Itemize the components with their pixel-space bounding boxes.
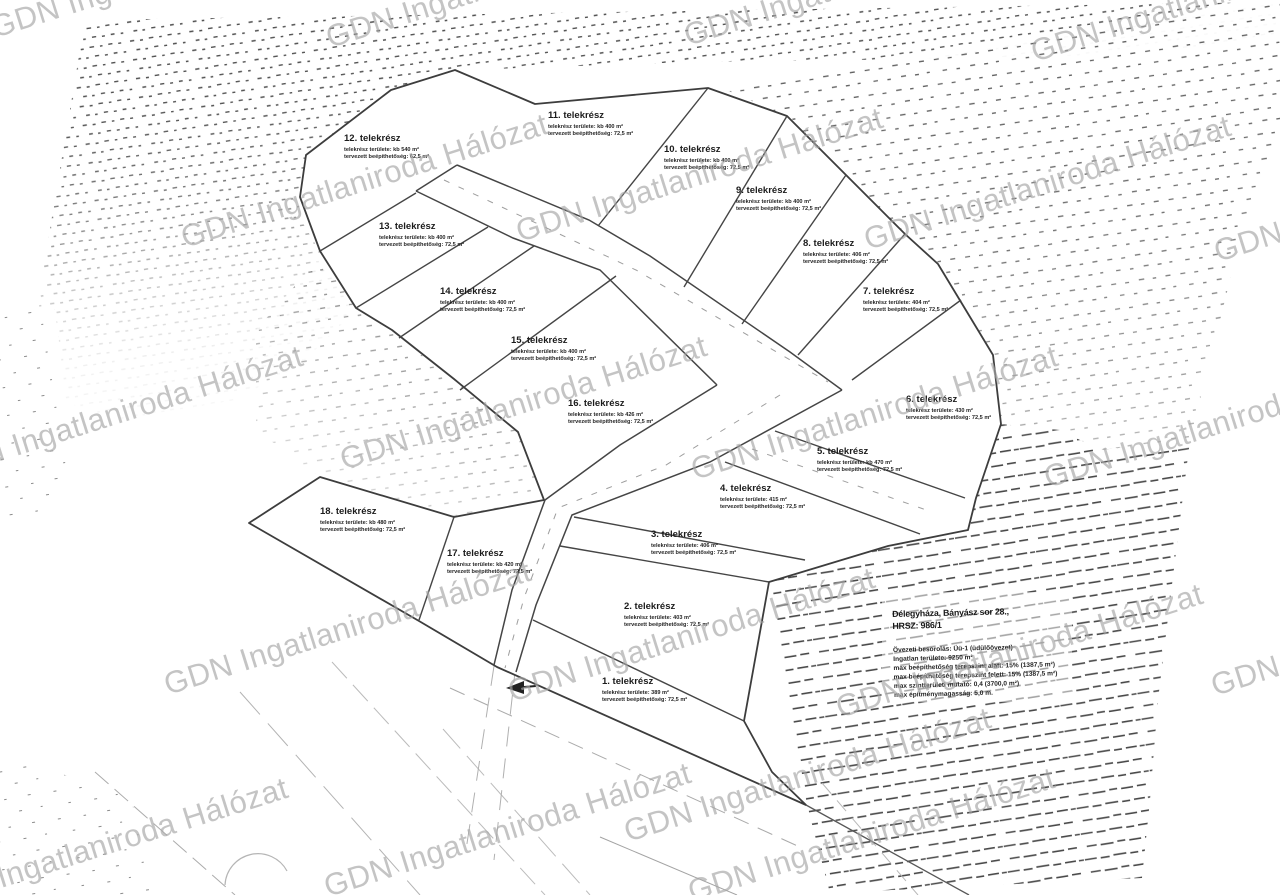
svg-text:telekrész területe: kb 426 m²: telekrész területe: kb 426 m² <box>568 411 643 418</box>
svg-text:tervezett beépíthetőség: 72,5: tervezett beépíthetőség: 72,5 m² <box>720 503 805 510</box>
svg-text:tervezett beépíthetőség: 72,5: tervezett beépíthetőség: 72,5 m² <box>736 205 821 212</box>
svg-text:tervezett beépíthetőség: 72,5: tervezett beépíthetőség: 72,5 m² <box>651 549 736 556</box>
svg-text:11. telekrész: 11. telekrész <box>548 110 604 121</box>
svg-text:telekrész területe: kb 400 m²: telekrész területe: kb 400 m² <box>379 234 454 241</box>
svg-text:tervezett beépíthetőség: 72,5: tervezett beépíthetőség: 72,5 m² <box>863 306 948 313</box>
svg-text:telekrész területe: 406 m²: telekrész területe: 406 m² <box>803 251 870 258</box>
svg-text:5. telekrész: 5. telekrész <box>817 446 868 457</box>
svg-text:tervezett beépíthetőség: 72,5: tervezett beépíthetőség: 72,5 m² <box>320 526 405 533</box>
svg-text:telekrész területe: kb 470 m²: telekrész területe: kb 470 m² <box>817 459 892 466</box>
svg-text:2. telekrész: 2. telekrész <box>624 601 675 612</box>
svg-text:14. telekrész: 14. telekrész <box>440 286 497 297</box>
svg-text:tervezett beépíthetőség: 72,5: tervezett beépíthetőség: 72,5 m² <box>548 130 633 137</box>
svg-text:HRSZ: 986/1: HRSZ: 986/1 <box>892 620 942 631</box>
svg-text:9. telekrész: 9. telekrész <box>736 185 787 196</box>
svg-text:telekrész területe: kb 480 m²: telekrész területe: kb 480 m² <box>320 519 395 526</box>
svg-text:8. telekrész: 8. telekrész <box>803 238 854 249</box>
svg-text:telekrész területe: kb 400 m²: telekrész területe: kb 400 m² <box>511 348 586 355</box>
svg-text:tervezett beépíthetőség: 72,5: tervezett beépíthetőség: 72,5 m² <box>817 466 902 473</box>
svg-text:tervezett beépíthetőség: 72,5: tervezett beépíthetőség: 72,5 m² <box>602 696 687 703</box>
svg-text:telekrész területe: 389 m²: telekrész területe: 389 m² <box>602 689 669 696</box>
svg-text:17. telekrész: 17. telekrész <box>447 548 504 559</box>
svg-text:13. telekrész: 13. telekrész <box>379 221 436 232</box>
svg-text:7. telekrész: 7. telekrész <box>863 286 914 297</box>
svg-text:tervezett beépíthetőség: 72,5: tervezett beépíthetőség: 72,5 m² <box>379 241 464 248</box>
svg-text:tervezett beépíthetőség: 72,5: tervezett beépíthetőség: 72,5 m² <box>440 306 525 313</box>
svg-text:18. telekrész: 18. telekrész <box>320 506 377 517</box>
svg-text:4. telekrész: 4. telekrész <box>720 483 771 494</box>
svg-text:telekrész területe: kb 400 m²: telekrész területe: kb 400 m² <box>736 198 811 205</box>
svg-text:15. telekrész: 15. telekrész <box>511 335 568 346</box>
svg-text:3. telekrész: 3. telekrész <box>651 529 702 540</box>
svg-text:tervezett beépíthetőség: 72,5: tervezett beépíthetőség: 72,5 m² <box>803 258 888 265</box>
svg-text:tervezett beépíthetőség: 72,5: tervezett beépíthetőség: 72,5 m² <box>511 355 596 362</box>
svg-text:telekrész területe: kb 400 m²: telekrész területe: kb 400 m² <box>548 123 623 130</box>
svg-text:tervezett beépíthetőség: 72,5: tervezett beépíthetőség: 72,5 m² <box>568 418 653 425</box>
svg-text:telekrész területe: 404 m²: telekrész területe: 404 m² <box>863 299 930 306</box>
svg-text:telekrész területe: 406 m²: telekrész területe: 406 m² <box>651 542 718 549</box>
svg-text:telekrész területe: 415 m²: telekrész területe: 415 m² <box>720 496 787 503</box>
svg-text:12. telekrész: 12. telekrész <box>344 133 401 144</box>
svg-text:telekrész területe: kb 400 m²: telekrész területe: kb 400 m² <box>440 299 515 306</box>
